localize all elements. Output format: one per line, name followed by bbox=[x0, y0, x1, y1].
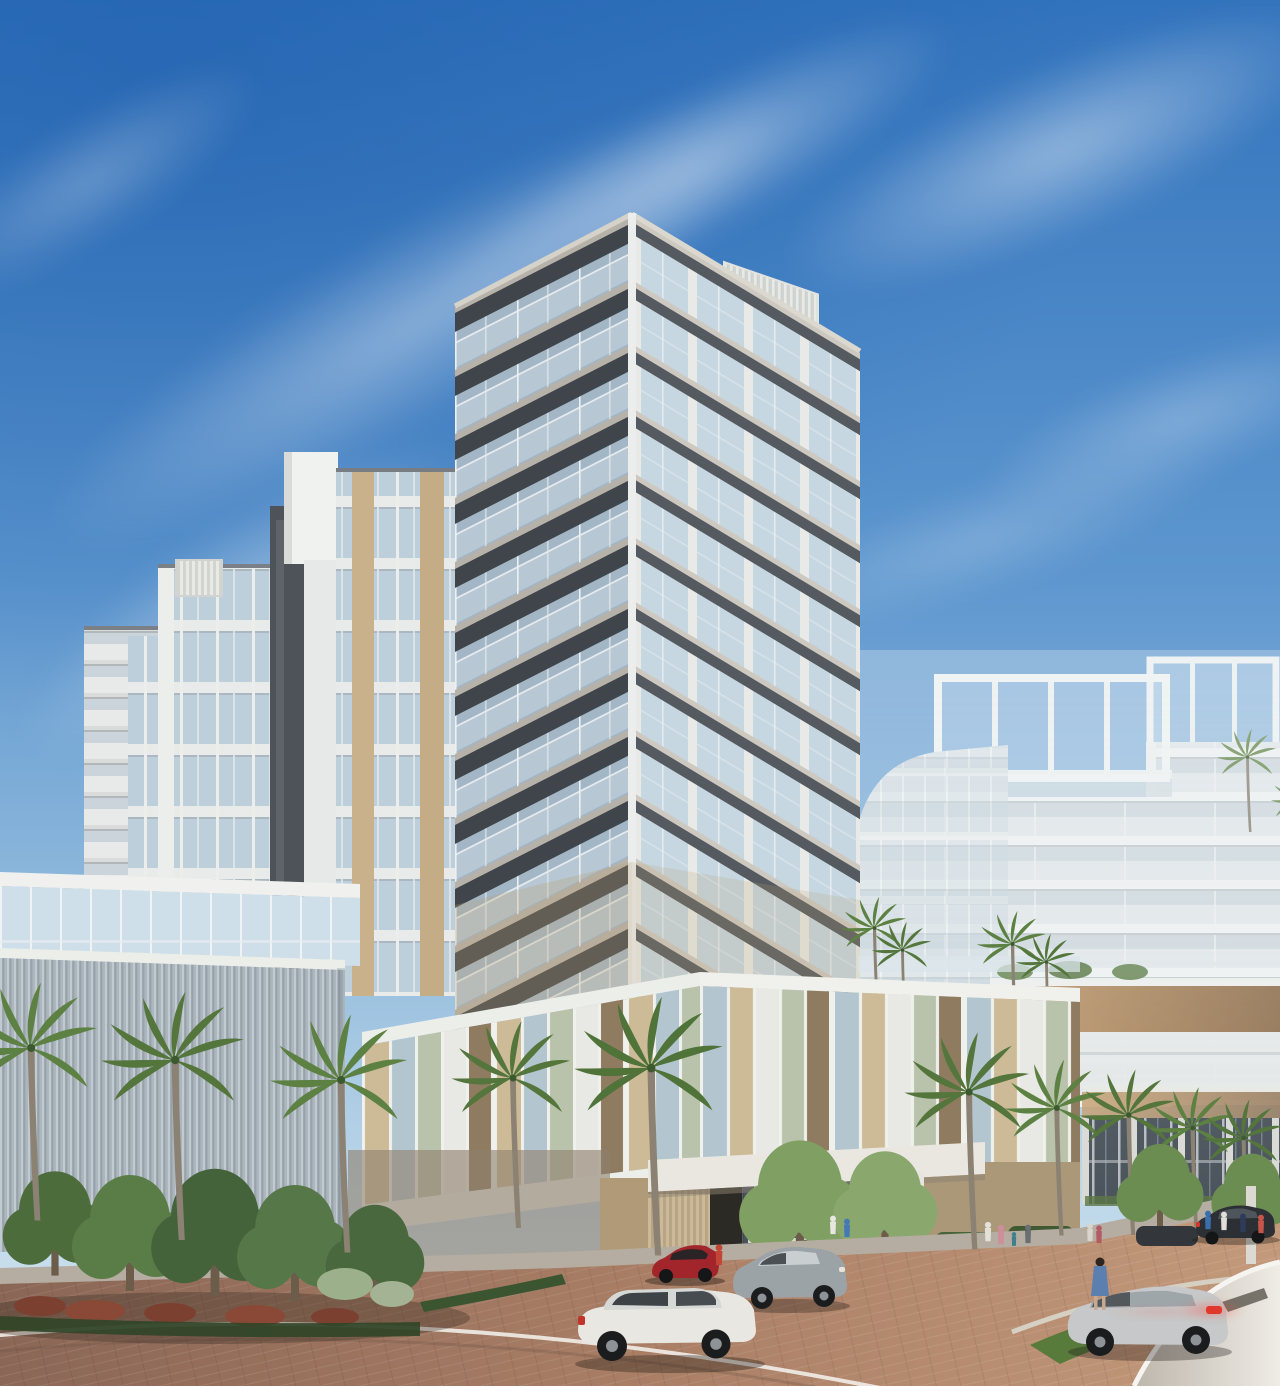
pale-bush bbox=[317, 1268, 373, 1300]
left-wing-roofline bbox=[84, 626, 170, 630]
pedestrian bbox=[844, 1219, 850, 1238]
taillight bbox=[1196, 1222, 1200, 1227]
pale-bush bbox=[370, 1281, 414, 1307]
pedestrian bbox=[1221, 1212, 1227, 1231]
parapet-shade bbox=[284, 452, 292, 564]
pedestrian-child bbox=[1012, 1232, 1016, 1246]
pedestrian bbox=[1240, 1214, 1246, 1233]
pedestrian bbox=[1096, 1225, 1102, 1243]
pedestrian bbox=[1205, 1211, 1211, 1230]
red-shrub bbox=[65, 1300, 125, 1322]
scene-canvas bbox=[0, 0, 1280, 1386]
white-parapet-core bbox=[284, 452, 338, 564]
taillight bbox=[578, 1316, 585, 1325]
pedestrian bbox=[830, 1216, 836, 1235]
pedestrian bbox=[1025, 1225, 1031, 1244]
parked-dark-car bbox=[1136, 1226, 1198, 1246]
red-shrub bbox=[144, 1303, 196, 1323]
tan-spandrel-strip-2 bbox=[420, 472, 444, 996]
pedestrian bbox=[1087, 1223, 1093, 1241]
rooftop-screen-small bbox=[176, 560, 222, 596]
pedestrian bbox=[716, 1244, 723, 1265]
red-shrub bbox=[14, 1296, 66, 1316]
headlight bbox=[839, 1267, 845, 1272]
right-wing-roofline bbox=[336, 468, 462, 472]
pedestrian bbox=[1258, 1215, 1264, 1234]
main-tower bbox=[455, 213, 860, 1050]
pedestrian bbox=[998, 1225, 1004, 1244]
pedestrian bbox=[985, 1222, 991, 1241]
podium-fins-right bbox=[700, 986, 1080, 1168]
architectural-rendering bbox=[0, 0, 1280, 1386]
